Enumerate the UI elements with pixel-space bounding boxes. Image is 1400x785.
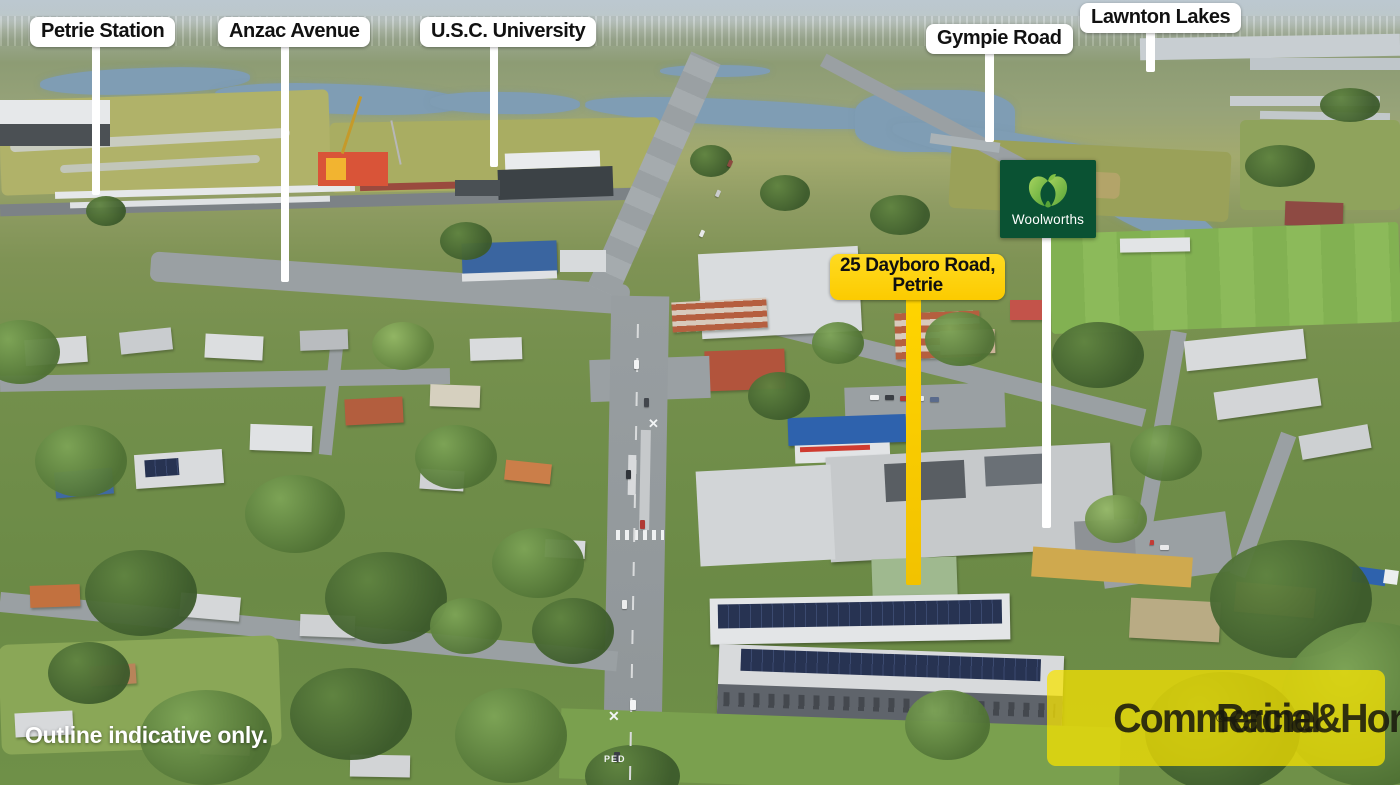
pointer-property xyxy=(906,295,921,585)
pointer-anzac-avenue xyxy=(281,45,289,282)
subject-building-upper xyxy=(710,593,1011,644)
property-label-line2: Petrie xyxy=(840,276,995,296)
pointer-lawnton-lakes xyxy=(1146,30,1155,72)
pointer-gympie-road xyxy=(985,52,994,142)
brand-division: Commercial xyxy=(1113,698,1319,738)
aerial-photo: ✕ ✕ PED xyxy=(0,0,1400,785)
woolworths-logo: Woolworths xyxy=(1000,160,1096,238)
woolworths-wordmark: Woolworths xyxy=(1012,212,1084,227)
label-petrie-station: Petrie Station xyxy=(30,17,175,47)
zebra-crossing xyxy=(616,530,664,540)
brand-raine-horne-commercial: Raine&Horne® Commercial xyxy=(1047,670,1385,766)
woolworths-apple-icon xyxy=(1025,172,1071,210)
property-label: 25 Dayboro Road, Petrie xyxy=(830,254,1005,300)
sports-field xyxy=(1048,222,1400,334)
road-marking-cross: ✕ xyxy=(648,416,659,432)
road-marking-cross: ✕ xyxy=(608,708,620,725)
label-anzac-avenue: Anzac Avenue xyxy=(218,17,370,47)
disclaimer-text: Outline indicative only. xyxy=(25,722,268,749)
pointer-usc-university xyxy=(490,45,498,167)
interchange xyxy=(150,251,631,314)
road-marking-ped: PED xyxy=(604,754,626,764)
service-station-canopy xyxy=(788,414,907,446)
label-lawnton-lakes: Lawnton Lakes xyxy=(1080,3,1241,33)
usc-campus-building xyxy=(498,166,614,200)
pointer-petrie-station xyxy=(92,45,100,195)
property-label-line1: 25 Dayboro Road, xyxy=(840,256,995,276)
pointer-woolworths xyxy=(1042,236,1051,528)
label-usc-university: U.S.C. University xyxy=(420,17,596,47)
woolworths-store-roof xyxy=(825,443,1115,563)
label-gympie-road: Gympie Road xyxy=(926,24,1073,54)
